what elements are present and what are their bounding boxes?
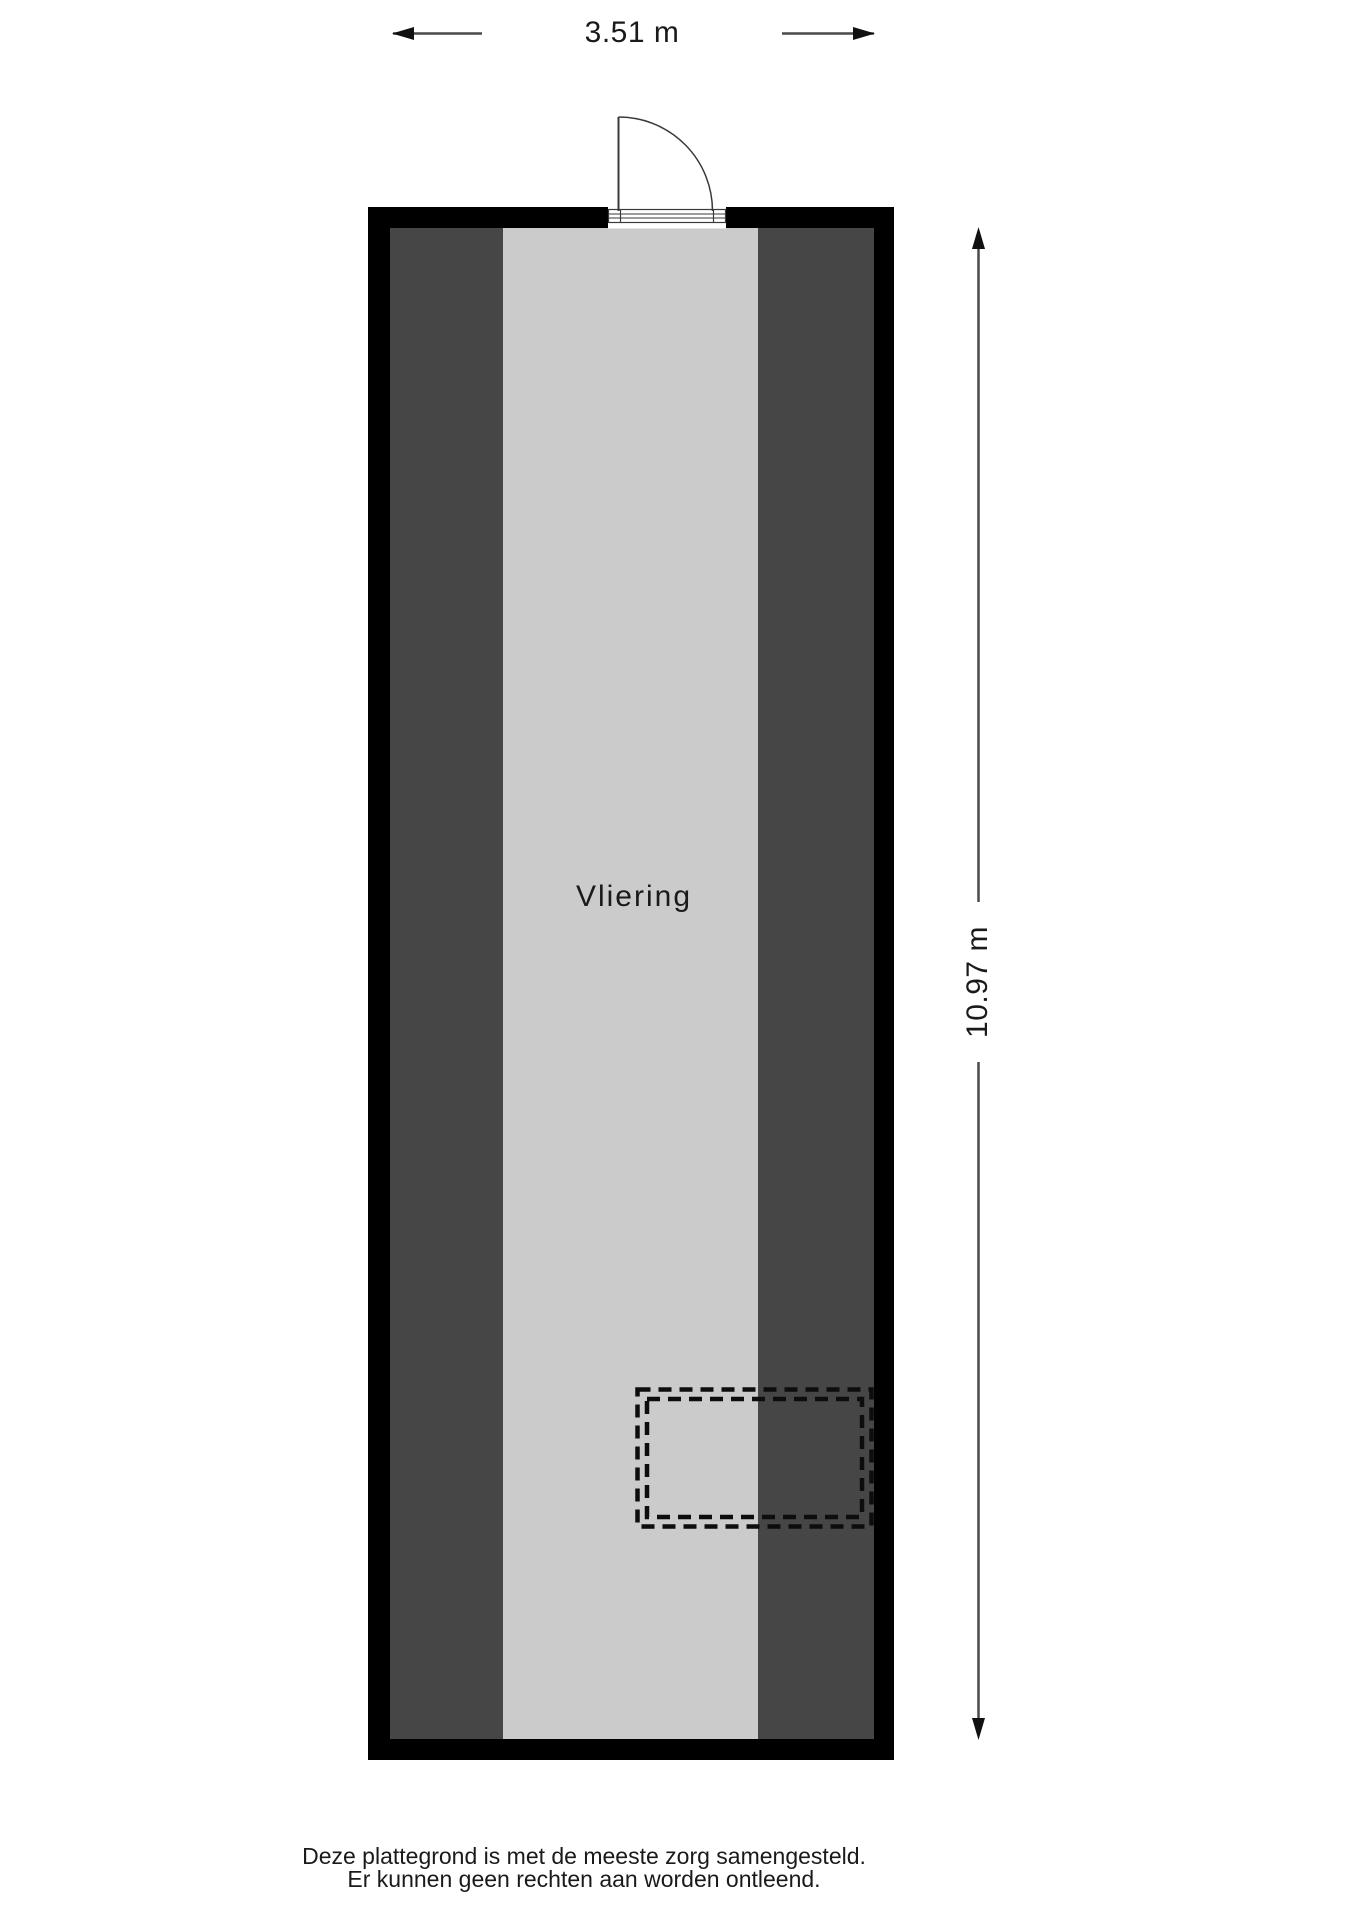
stair-opening-inner-dashed bbox=[647, 1399, 862, 1517]
arrowhead-right-icon bbox=[853, 27, 875, 40]
door-swing-arc bbox=[619, 117, 713, 211]
floor-plan-page: 3.51 m 10.97 m Vliering Deze plattegrond… bbox=[0, 0, 1358, 1920]
width-dimension-label: 3.51 m bbox=[482, 17, 782, 49]
door-threshold bbox=[609, 210, 726, 223]
arrowhead-down-icon bbox=[972, 1718, 985, 1740]
arrowhead-up-icon bbox=[972, 227, 985, 249]
door bbox=[608, 117, 726, 229]
plan-linework bbox=[0, 0, 1358, 1920]
arrowhead-left-icon bbox=[392, 27, 414, 40]
stair-opening-outer-dashed bbox=[638, 1390, 872, 1527]
disclaimer-line2: Er kunnen geen rechten aan worden ontlee… bbox=[184, 1868, 984, 1891]
disclaimer: Deze plattegrond is met de meeste zorg s… bbox=[184, 1845, 984, 1891]
height-dimension-label: 10.97 m bbox=[962, 902, 994, 1062]
disclaimer-line1: Deze plattegrond is met de meeste zorg s… bbox=[184, 1845, 984, 1868]
room-label: Vliering bbox=[484, 880, 784, 914]
stair-opening bbox=[638, 1390, 872, 1527]
